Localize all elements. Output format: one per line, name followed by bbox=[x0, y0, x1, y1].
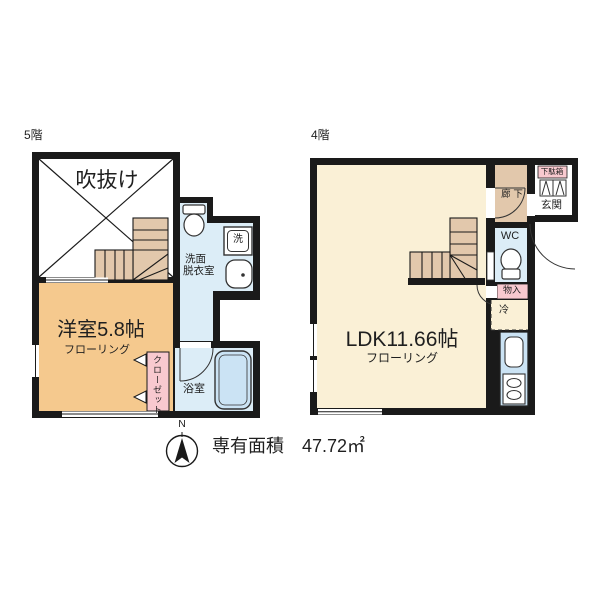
room-label-ldk: LDK11.66帖 bbox=[346, 329, 459, 350]
area-caption: 専有面積47.72㎡ bbox=[212, 437, 365, 455]
storage-label: 物入 bbox=[503, 286, 521, 295]
room-label-bedroom-floor: フローリング bbox=[64, 345, 130, 356]
floor5-plan bbox=[28, 148, 268, 423]
shoebox-label: 下駄箱 bbox=[541, 168, 564, 176]
shoe-cabinet-icon bbox=[540, 180, 566, 196]
area-label: 専有面積 bbox=[212, 436, 284, 456]
floor4-plan bbox=[305, 148, 590, 423]
room-label-bedroom: 洋室5.8帖 bbox=[57, 320, 145, 340]
north-label: N bbox=[178, 419, 186, 430]
washer-label: 洗 bbox=[233, 235, 243, 245]
stove-icon bbox=[503, 374, 525, 404]
room-label-ldk-floor: フローリング bbox=[366, 352, 438, 364]
fridge-space bbox=[491, 300, 528, 330]
area-value: 47.72㎡ bbox=[302, 436, 365, 456]
toilet-icon bbox=[183, 205, 205, 236]
front-door-arc bbox=[530, 224, 575, 269]
room-label-washroom-1: 洗面 bbox=[185, 254, 206, 265]
room-label-wc: WC bbox=[501, 231, 519, 242]
wc-door bbox=[487, 252, 494, 280]
kitchen-counter-icon bbox=[500, 332, 528, 406]
compass-icon bbox=[164, 432, 200, 470]
hallway-entrance-opening bbox=[527, 194, 535, 216]
room-label-bath: 浴室 bbox=[183, 384, 205, 395]
floor5-label: 5階 bbox=[24, 129, 43, 141]
floor4-label: 4階 bbox=[311, 129, 330, 141]
floorplan-canvas: { "legend": { "north": "N", "area_label"… bbox=[0, 0, 600, 600]
room-label-hallway: 廊 下 bbox=[501, 190, 523, 200]
room-ldk bbox=[317, 165, 486, 408]
room-label-void: 吹抜け bbox=[76, 170, 139, 191]
kitchen-sink-icon bbox=[505, 337, 523, 367]
room-label-washroom-2: 脱衣室 bbox=[183, 266, 215, 277]
bathtub-icon bbox=[215, 351, 251, 409]
sink-icon bbox=[226, 260, 252, 288]
fridge-label: 冷 bbox=[499, 306, 509, 316]
wc-toilet-icon bbox=[501, 249, 521, 279]
room-label-entrance: 玄関 bbox=[541, 200, 562, 211]
stairs-bottom-wall bbox=[408, 278, 485, 285]
room-label-closet: クローゼット bbox=[152, 355, 161, 415]
